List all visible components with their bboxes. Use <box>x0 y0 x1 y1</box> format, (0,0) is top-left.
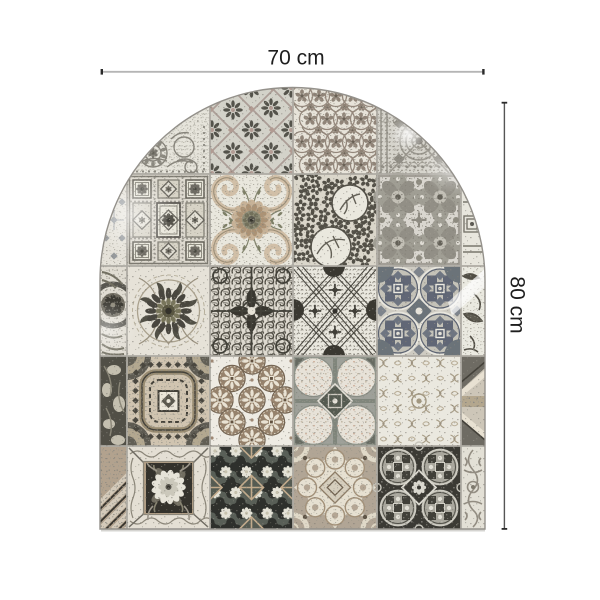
svg-text:80 cm: 80 cm <box>506 276 529 333</box>
svg-text:70 cm: 70 cm <box>267 47 324 70</box>
